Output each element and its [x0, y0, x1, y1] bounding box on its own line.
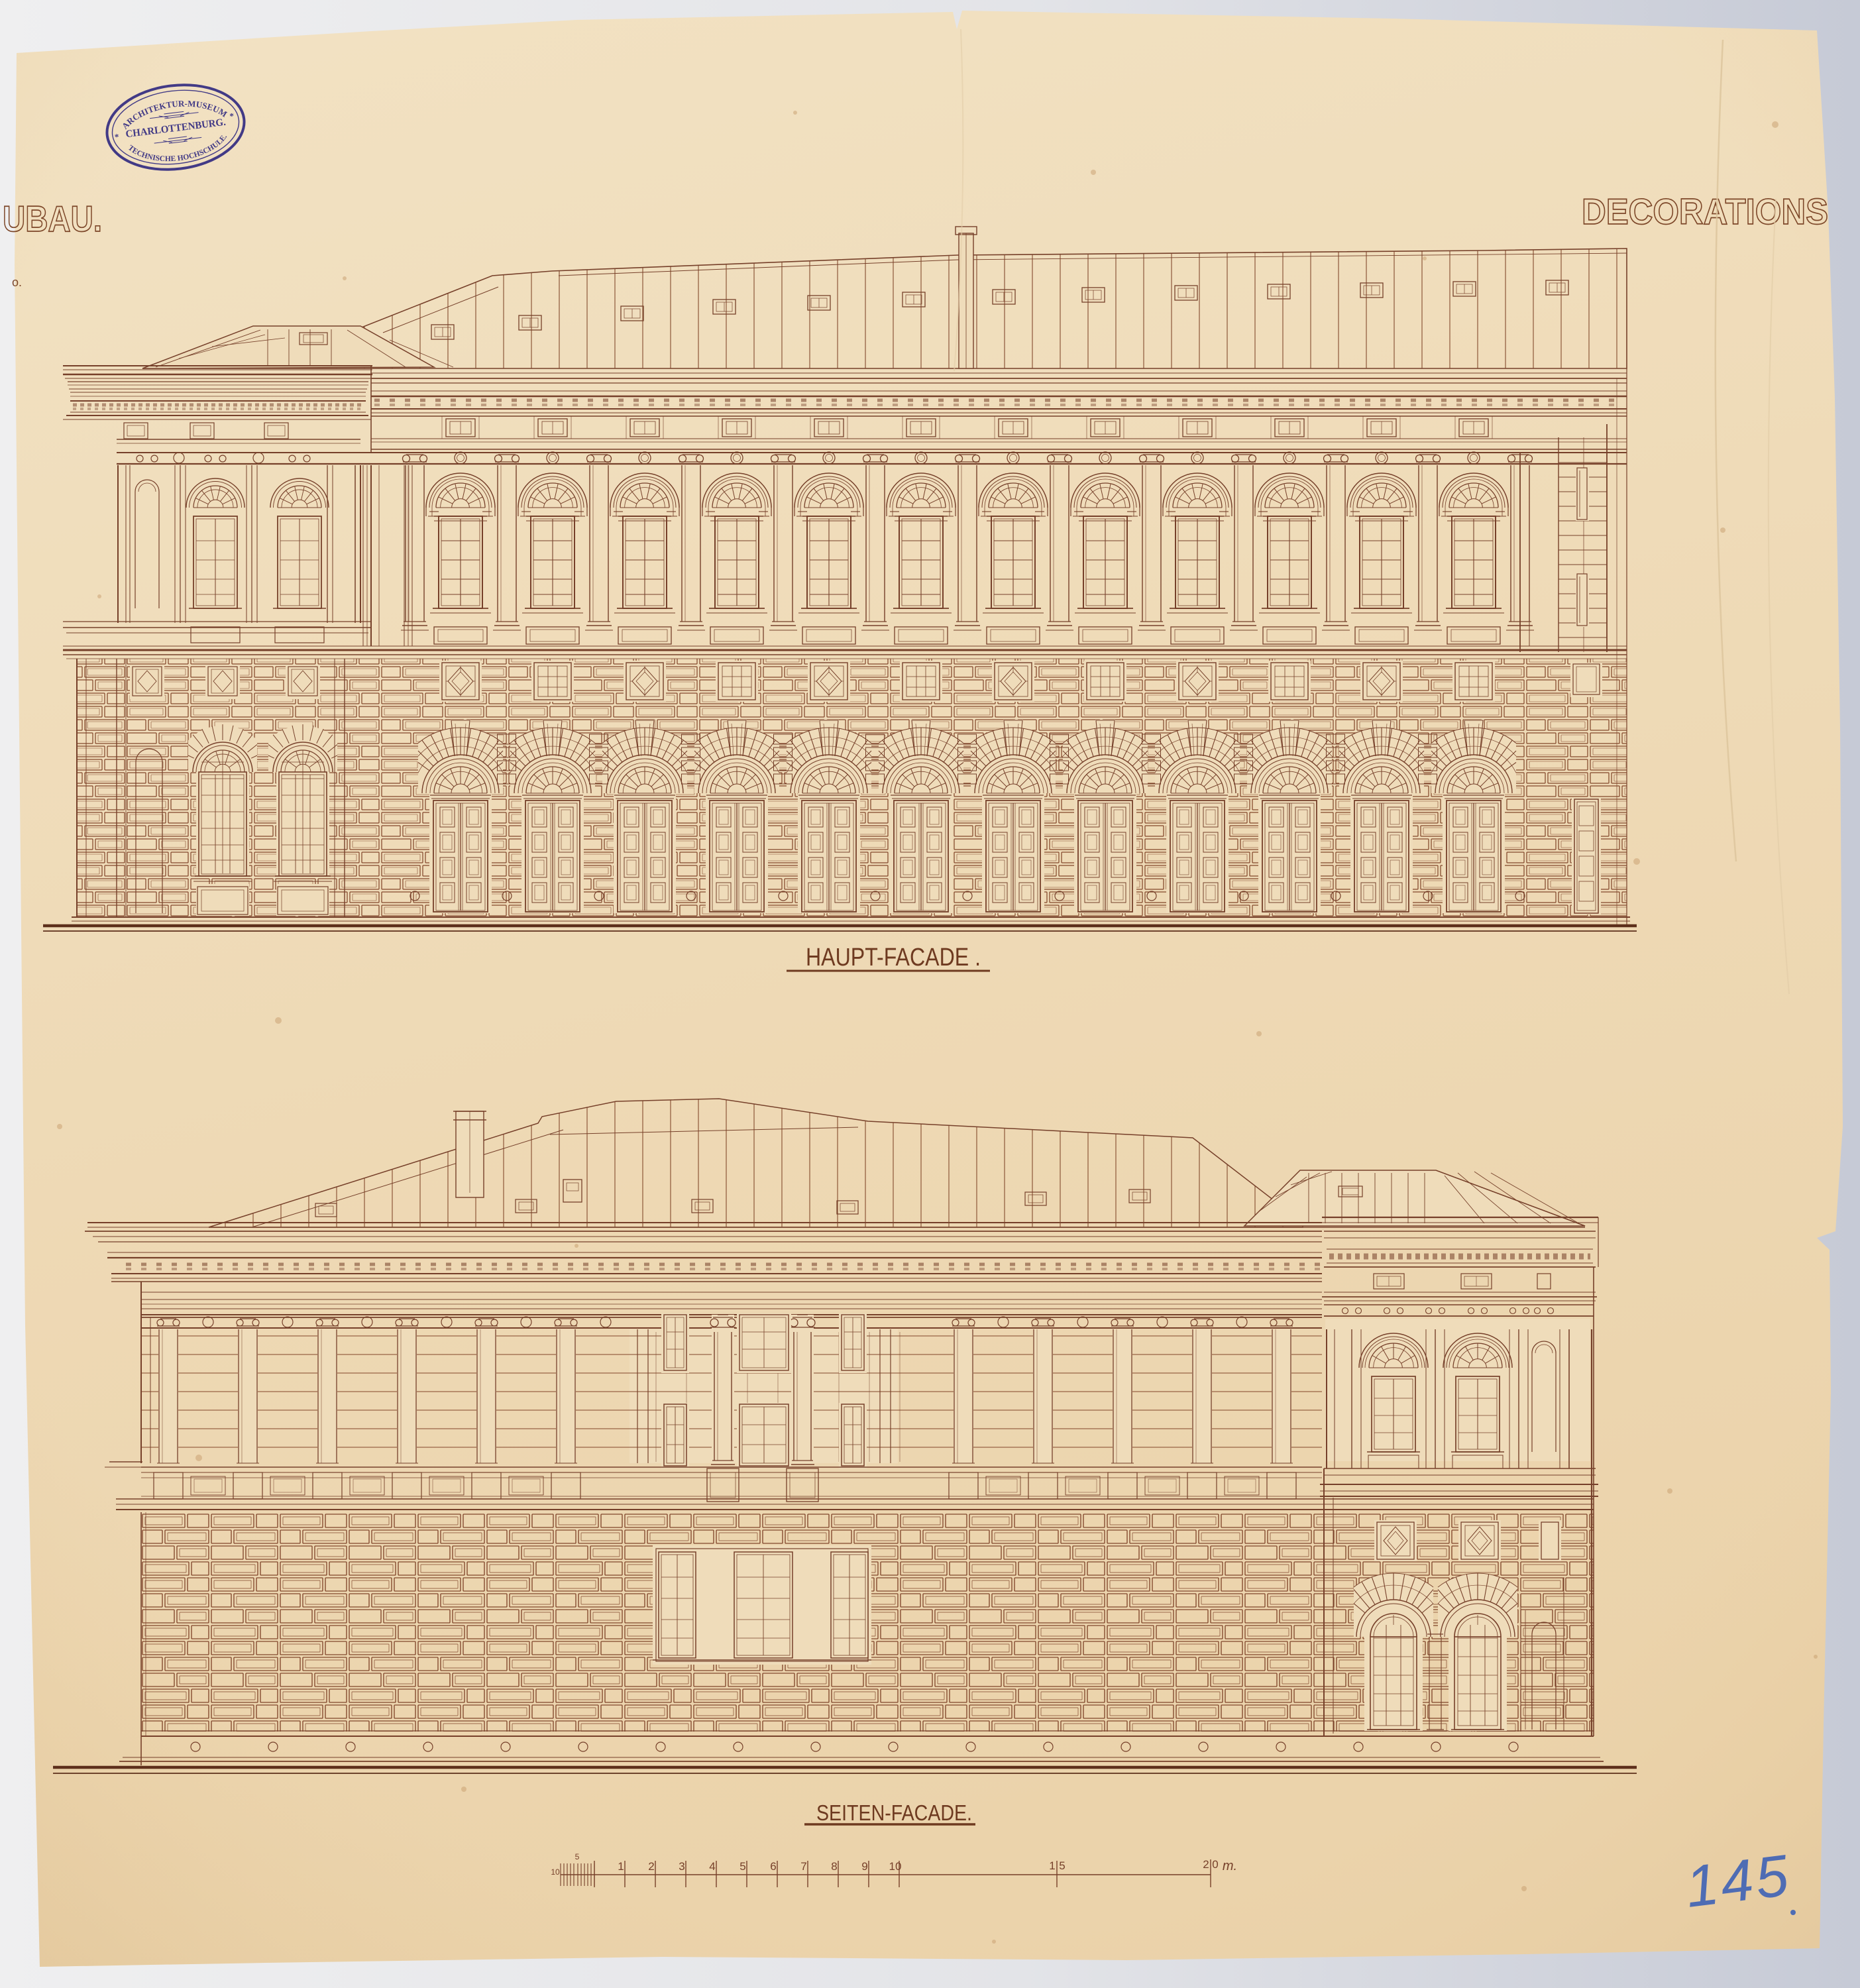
svg-text:5: 5: [575, 1852, 580, 1861]
svg-text:9: 9: [861, 1860, 867, 1873]
svg-text:7: 7: [800, 1860, 806, 1873]
svg-text:3: 3: [679, 1860, 684, 1873]
svg-text:DECORATIONS: DECORATIONS: [1582, 191, 1828, 232]
svg-text:o.: o.: [12, 276, 22, 289]
svg-text:2: 2: [1203, 1858, 1209, 1871]
svg-text:SEITEN-FACADE.: SEITEN-FACADE.: [816, 1800, 972, 1825]
svg-text:5: 5: [1059, 1859, 1065, 1872]
svg-text:10: 10: [551, 1867, 560, 1877]
svg-text:m.: m.: [1223, 1859, 1237, 1873]
svg-text:1: 1: [618, 1860, 624, 1873]
svg-text:6: 6: [770, 1860, 776, 1873]
svg-text:UBAU.: UBAU.: [3, 198, 102, 239]
svg-text:145: 145: [1682, 1842, 1794, 1920]
svg-text:10: 10: [889, 1860, 902, 1873]
svg-text:1: 1: [1049, 1859, 1055, 1872]
svg-text:5: 5: [739, 1860, 745, 1873]
svg-text:0: 0: [1212, 1858, 1218, 1871]
svg-text:8: 8: [831, 1860, 837, 1873]
svg-text:HAUPT-FACADE .: HAUPT-FACADE .: [806, 944, 981, 971]
svg-text:2: 2: [648, 1860, 654, 1873]
svg-text:4: 4: [709, 1860, 715, 1873]
